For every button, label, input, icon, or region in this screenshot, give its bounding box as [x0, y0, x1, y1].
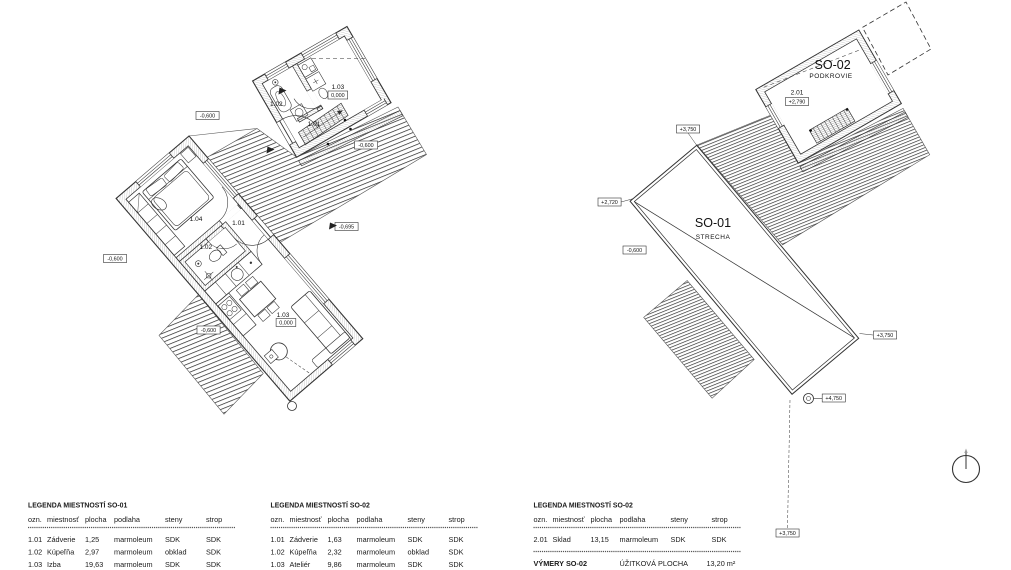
svg-text:miestnosť: miestnosť: [47, 515, 79, 524]
svg-text:marmoleum: marmoleum: [114, 548, 153, 557]
svg-text:steny: steny: [165, 515, 183, 524]
svg-text:SDK: SDK: [449, 548, 464, 557]
svg-text:LEGENDA MIESTNOSTÍ SO-02: LEGENDA MIESTNOSTÍ SO-02: [534, 501, 633, 510]
svg-text:Zádverie: Zádverie: [47, 535, 75, 544]
svg-text:Sklad: Sklad: [553, 535, 571, 544]
svg-text:miestnosť: miestnosť: [290, 515, 322, 524]
svg-text:strop: strop: [449, 515, 465, 524]
svg-text:plocha: plocha: [328, 515, 350, 524]
svg-text:1.02: 1.02: [199, 244, 212, 251]
svg-text:SDK: SDK: [165, 535, 180, 544]
svg-text:2,97: 2,97: [85, 548, 99, 557]
svg-text:podlaha: podlaha: [620, 515, 647, 524]
svg-text:+2,790: +2,790: [789, 99, 806, 105]
svg-text:1.01: 1.01: [271, 535, 285, 544]
svg-text:1,25: 1,25: [85, 535, 99, 544]
svg-text:strop: strop: [712, 515, 728, 524]
svg-text:+2,720: +2,720: [601, 200, 618, 206]
svg-text:SO-01: SO-01: [695, 216, 731, 230]
svg-text:SDK: SDK: [408, 560, 423, 569]
svg-text:0,000: 0,000: [279, 320, 293, 326]
svg-text:1.03: 1.03: [28, 560, 42, 569]
svg-text:SDK: SDK: [671, 535, 686, 544]
svg-text:ozn.: ozn.: [28, 515, 42, 524]
svg-text:1.01: 1.01: [308, 121, 321, 128]
svg-text:SDK: SDK: [165, 560, 180, 569]
svg-text:1.03: 1.03: [332, 84, 345, 91]
svg-text:1.04: 1.04: [190, 216, 203, 223]
svg-text:1.01: 1.01: [232, 220, 245, 227]
svg-text:13,20 m²: 13,20 m²: [707, 559, 736, 568]
svg-text:obklad: obklad: [408, 548, 430, 557]
svg-text:SDK: SDK: [206, 535, 221, 544]
svg-text:+3,750: +3,750: [680, 127, 697, 133]
svg-text:marmoleum: marmoleum: [114, 560, 153, 569]
svg-text:SDK: SDK: [449, 535, 464, 544]
svg-text:PODKROVIE: PODKROVIE: [809, 73, 852, 80]
svg-text:-0,600: -0,600: [200, 113, 215, 119]
svg-text:2,32: 2,32: [328, 548, 342, 557]
svg-text:marmoleum: marmoleum: [620, 535, 659, 544]
svg-text:miestnosť: miestnosť: [553, 515, 585, 524]
svg-text:1.03: 1.03: [271, 560, 285, 569]
svg-text:2.01: 2.01: [791, 90, 804, 97]
svg-text:ÚŽITKOVÁ PLOCHA: ÚŽITKOVÁ PLOCHA: [620, 559, 689, 568]
svg-text:ozn.: ozn.: [271, 515, 285, 524]
svg-text:1.03: 1.03: [277, 312, 290, 319]
svg-text:2.01: 2.01: [534, 535, 548, 544]
svg-text:SO-02: SO-02: [815, 58, 851, 72]
svg-text:-0,600: -0,600: [627, 248, 642, 254]
svg-text:+3,750: +3,750: [877, 333, 894, 339]
svg-text:1.02: 1.02: [28, 548, 42, 557]
svg-text:+3,750: +3,750: [779, 531, 796, 537]
svg-text:Izba: Izba: [47, 560, 62, 569]
svg-text:1,63: 1,63: [328, 535, 342, 544]
svg-text:0,000: 0,000: [331, 93, 345, 99]
svg-text:SDK: SDK: [712, 535, 727, 544]
svg-text:podlaha: podlaha: [357, 515, 384, 524]
svg-text:Kúpeľňa: Kúpeľňa: [47, 548, 75, 557]
svg-text:marmoleum: marmoleum: [114, 535, 153, 544]
svg-text:-0,600: -0,600: [107, 256, 122, 262]
svg-text:SDK: SDK: [408, 535, 423, 544]
svg-text:plocha: plocha: [591, 515, 613, 524]
svg-text:19,63: 19,63: [85, 560, 103, 569]
svg-text:strop: strop: [206, 515, 222, 524]
svg-text:marmoleum: marmoleum: [357, 535, 396, 544]
svg-text:steny: steny: [671, 515, 689, 524]
svg-text:marmoleum: marmoleum: [357, 548, 396, 557]
svg-text:marmoleum: marmoleum: [357, 560, 396, 569]
svg-text:-0,600: -0,600: [201, 328, 216, 334]
svg-text:Zádverie: Zádverie: [290, 535, 318, 544]
svg-text:ozn.: ozn.: [534, 515, 548, 524]
svg-text:13,15: 13,15: [591, 535, 609, 544]
svg-text:obklad: obklad: [165, 548, 187, 557]
svg-text:1.02: 1.02: [271, 548, 285, 557]
svg-text:Ateliér: Ateliér: [290, 560, 311, 569]
svg-text:1.01: 1.01: [28, 535, 42, 544]
svg-text:Kúpeľňa: Kúpeľňa: [290, 548, 318, 557]
svg-text:steny: steny: [408, 515, 426, 524]
svg-text:VÝMERY SO-02: VÝMERY SO-02: [534, 559, 588, 568]
svg-text:LEGENDA MIESTNOSTÍ SO-02: LEGENDA MIESTNOSTÍ SO-02: [271, 501, 370, 510]
svg-text:LEGENDA MIESTNOSTÍ SO-01: LEGENDA MIESTNOSTÍ SO-01: [28, 501, 127, 510]
svg-text:plocha: plocha: [85, 515, 107, 524]
svg-text:9,86: 9,86: [328, 560, 342, 569]
svg-text:SDK: SDK: [206, 560, 221, 569]
svg-text:1.02: 1.02: [270, 101, 283, 108]
svg-text:SDK: SDK: [206, 548, 221, 557]
svg-text:-0,600: -0,600: [358, 143, 373, 149]
svg-text:-0,695: -0,695: [339, 224, 354, 230]
svg-text:STRECHA: STRECHA: [696, 234, 731, 241]
svg-text:podlaha: podlaha: [114, 515, 141, 524]
svg-text:+4,750: +4,750: [825, 396, 842, 402]
svg-text:SDK: SDK: [449, 560, 464, 569]
